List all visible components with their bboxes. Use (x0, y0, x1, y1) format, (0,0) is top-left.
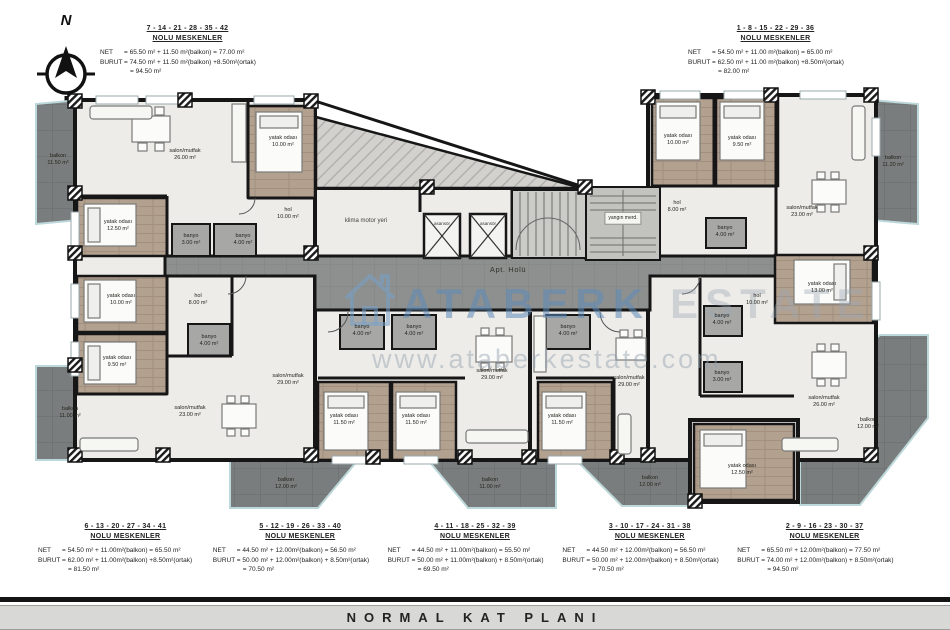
room-label: yatak odası9.50 m² (103, 355, 131, 369)
room-label: yatak odası12.50 m² (104, 219, 132, 233)
room-label: salon/mutfak23.00 m² (786, 205, 817, 219)
room-label: yatak odası11.50 m² (402, 413, 430, 427)
floor-plan-page: N 7 - 14 - 21 - 28 - 35 - 42 NOLU MESKEN… (0, 0, 950, 630)
room-label: balkon11.20 m² (882, 155, 903, 169)
room-labels-layer: salon/mutfak26.00 m²yatak odası10.00 m²h… (0, 0, 950, 630)
room-label: balkon11.50 m² (47, 153, 68, 167)
room-label: yatak odası11.50 m² (548, 413, 576, 427)
room-label: balkon12.00 m² (639, 475, 661, 489)
room-label: yatak odası12.50 m² (728, 463, 756, 477)
room-label: balkon12.00 m² (275, 477, 297, 491)
room-label: salon/mutfak23.00 m² (174, 405, 205, 419)
room-label: hol8.00 m² (668, 200, 687, 214)
room-label: salon/mutfak26.00 m² (169, 148, 200, 162)
room-label: salon/mutfak29.00 m² (272, 373, 303, 387)
plan-annotation: Apt. Holü (490, 265, 526, 275)
room-label: yatak odası13.00 m² (808, 281, 836, 295)
room-label: yatak odası10.00 m² (107, 293, 135, 307)
room-label: salon/mutfak29.00 m² (613, 375, 644, 389)
room-label: banyo4.00 m² (559, 324, 578, 338)
room-label: banyo4.00 m² (716, 225, 735, 239)
room-label: hol8.00 m² (189, 293, 208, 307)
plan-annotation: asansör (480, 221, 496, 227)
plan-annotation: klima motor yeri (345, 218, 387, 226)
room-label: banyo3.00 m² (182, 233, 201, 247)
room-label: balkon12.00 m² (857, 417, 879, 431)
plan-annotation: asansör (434, 221, 450, 227)
room-label: banyo4.00 m² (405, 324, 424, 338)
room-label: salon/mutfak29.00 m² (476, 368, 507, 382)
room-label: banyo3.00 m² (713, 370, 732, 384)
room-label: balkon11.00 m² (59, 406, 80, 420)
room-label: hol10.00 m² (277, 207, 299, 221)
plan-annotation: yangın merd. (604, 212, 641, 225)
room-label: banyo4.00 m² (713, 313, 732, 327)
room-label: salon/mutfak26.00 m² (808, 395, 839, 409)
room-label: banyo4.00 m² (200, 334, 219, 348)
room-label: balkon11.00 m² (479, 477, 500, 491)
room-label: hol10.00 m² (746, 293, 768, 307)
room-label: yatak odası9.50 m² (728, 135, 756, 149)
room-label: banyo4.00 m² (234, 233, 253, 247)
room-label: yatak odası10.00 m² (269, 135, 297, 149)
room-label: yatak odası10.00 m² (664, 133, 692, 147)
room-label: yatak odası11.50 m² (330, 413, 358, 427)
room-label: banyo4.00 m² (353, 324, 372, 338)
